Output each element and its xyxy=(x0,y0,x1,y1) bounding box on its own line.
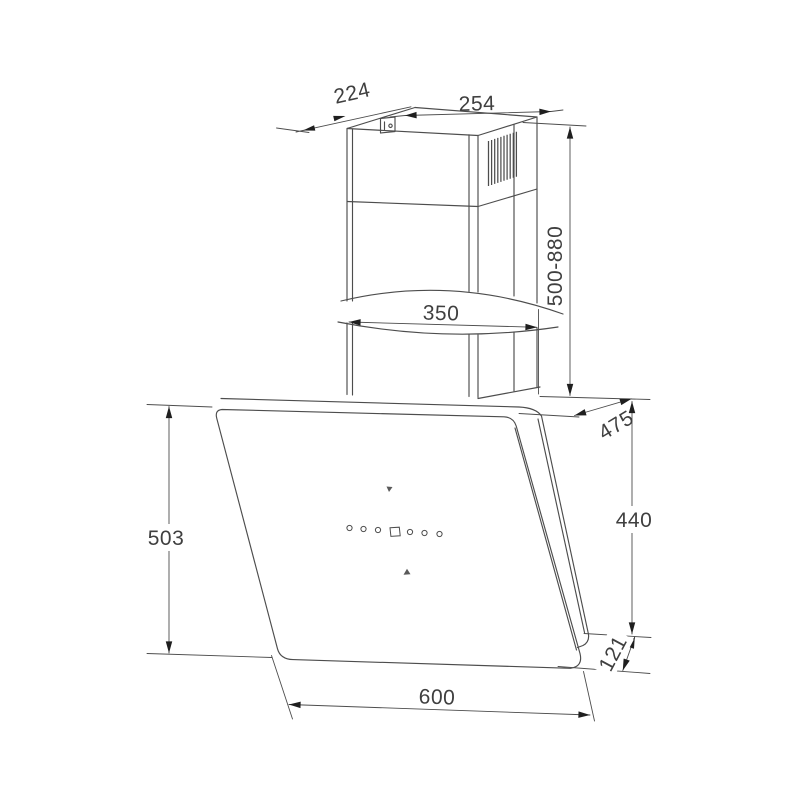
dim-label-hood-width: 600 xyxy=(418,685,455,709)
dim-label-chimney-height-range: 500-880 xyxy=(544,226,567,307)
dim-label-bottom-edge-offset-group: 121 xyxy=(590,627,634,678)
hood-body xyxy=(216,399,588,669)
triangle-mark-upper-icon xyxy=(387,487,393,493)
hood-rear-body-outline xyxy=(221,399,589,648)
control-button-icon xyxy=(375,527,380,532)
chimney-front-edges xyxy=(347,129,478,398)
dim-label-hood-back-height: 440 xyxy=(616,509,653,532)
control-button-icon xyxy=(361,526,366,531)
control-button-icon xyxy=(347,525,352,530)
control-button-icon xyxy=(407,529,412,534)
control-button-icon xyxy=(422,530,427,535)
dim-label-hood-back-height-group: 440 xyxy=(613,506,655,533)
chimney-duct xyxy=(338,108,563,399)
dim-label-chimney-base-width: 350 xyxy=(422,302,459,326)
glass-thickness-edge xyxy=(515,428,577,650)
triangle-mark-lower-icon xyxy=(404,569,411,575)
chimney-top-opening xyxy=(347,108,537,136)
glass-front-panel xyxy=(216,410,580,669)
dim-chimney-top-depth xyxy=(277,107,412,133)
dim-label-hood-front-height: 503 xyxy=(148,527,185,550)
dim-label-hood-depth: 475 xyxy=(595,406,638,445)
dim-label-chimney-top-width: 254 xyxy=(458,92,495,116)
dim-label-chimney-top-depth: 224 xyxy=(332,78,373,109)
hood-body-inner-edge xyxy=(538,419,585,633)
display-window-icon xyxy=(390,527,400,536)
control-panel xyxy=(347,525,442,536)
control-button-icon xyxy=(437,531,442,536)
chimney-base-edge xyxy=(478,387,540,399)
arrowhead-icon xyxy=(303,125,315,130)
chimney-side-edges xyxy=(514,118,537,392)
dim-label-hood-front-height-group: 503 xyxy=(147,524,187,551)
chimney-section-seam xyxy=(347,189,537,207)
vent-grille xyxy=(489,132,517,186)
arrowhead-icon xyxy=(333,116,345,121)
cooker-hood-technical-drawing: 224 254 500-880 350 475 503 440 121 600 xyxy=(0,0,800,800)
dimension-drawing-canvas: 224 254 500-880 350 475 503 440 121 600 xyxy=(0,0,800,800)
